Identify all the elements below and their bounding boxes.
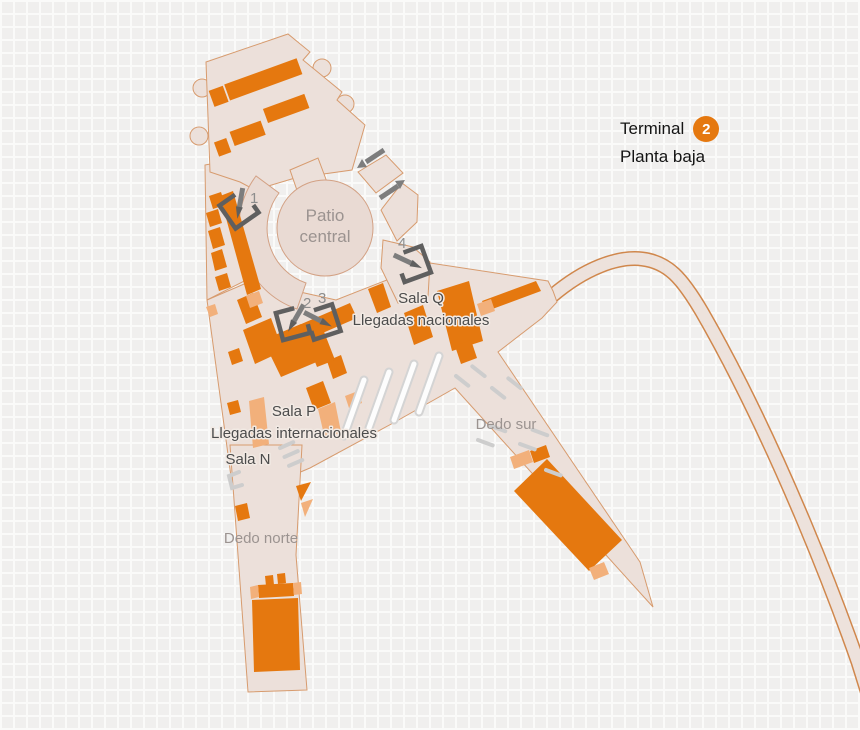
access-road <box>552 259 860 694</box>
patio-central-label-line1: Patio <box>306 206 345 225</box>
sala-q-label: Sala Q <box>398 290 444 307</box>
sala-p-label: Sala P <box>272 403 316 420</box>
terminal-label: Terminal <box>620 119 684 139</box>
floor-label: Planta baja <box>620 147 719 167</box>
llegadas-internacionales-label: Llegadas internacionales <box>211 425 377 442</box>
entry-marker-3-number: 3 <box>318 290 326 307</box>
llegadas-nacionales-label: Llegadas nacionales <box>353 312 490 329</box>
checkin-hall-shape <box>190 34 365 190</box>
terminal-number-badge: 2 <box>693 116 719 142</box>
patio-central-label-line2: central <box>299 227 350 246</box>
entry-marker-4-number: 4 <box>398 235 406 252</box>
entry-marker-1-number: 1 <box>250 190 258 207</box>
entry-marker-2-number: 2 <box>303 295 311 312</box>
sala-n-label: Sala N <box>225 451 270 468</box>
dedo-norte-label: Dedo norte <box>224 530 298 547</box>
terminal-map-svg: 1 2 3 4 Patio <box>0 0 860 730</box>
terminal-map[interactable]: 1 2 3 4 Patio <box>0 0 860 730</box>
dedo-sur-label: Dedo sur <box>476 416 537 433</box>
map-title: Terminal 2 Planta baja <box>620 116 719 167</box>
